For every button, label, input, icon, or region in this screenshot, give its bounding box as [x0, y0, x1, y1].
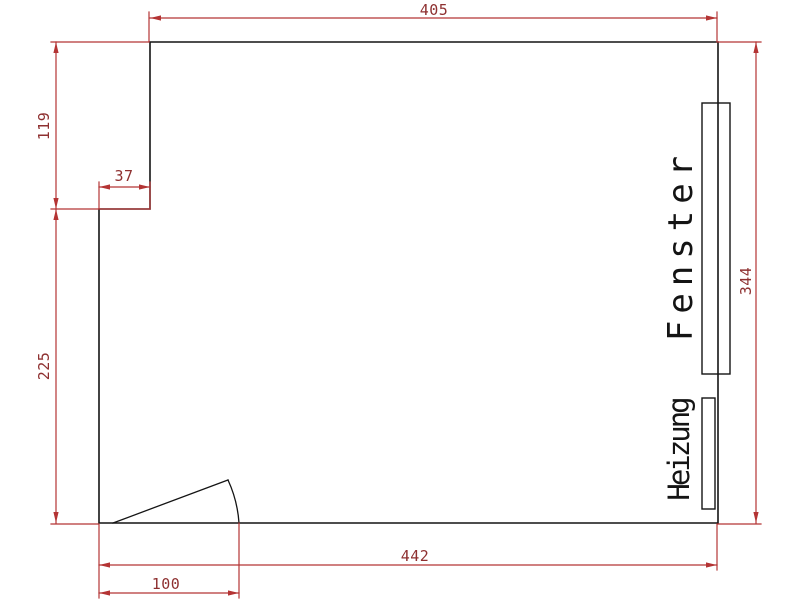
window-label: Fenster: [661, 149, 701, 341]
label-layer: Fenster Heizung: [0, 0, 800, 600]
cad-floorplan-drawing: 405 119 37 225 344 442 100 Fenster Heizu…: [0, 0, 800, 600]
heater-label: Heizung: [662, 399, 696, 500]
